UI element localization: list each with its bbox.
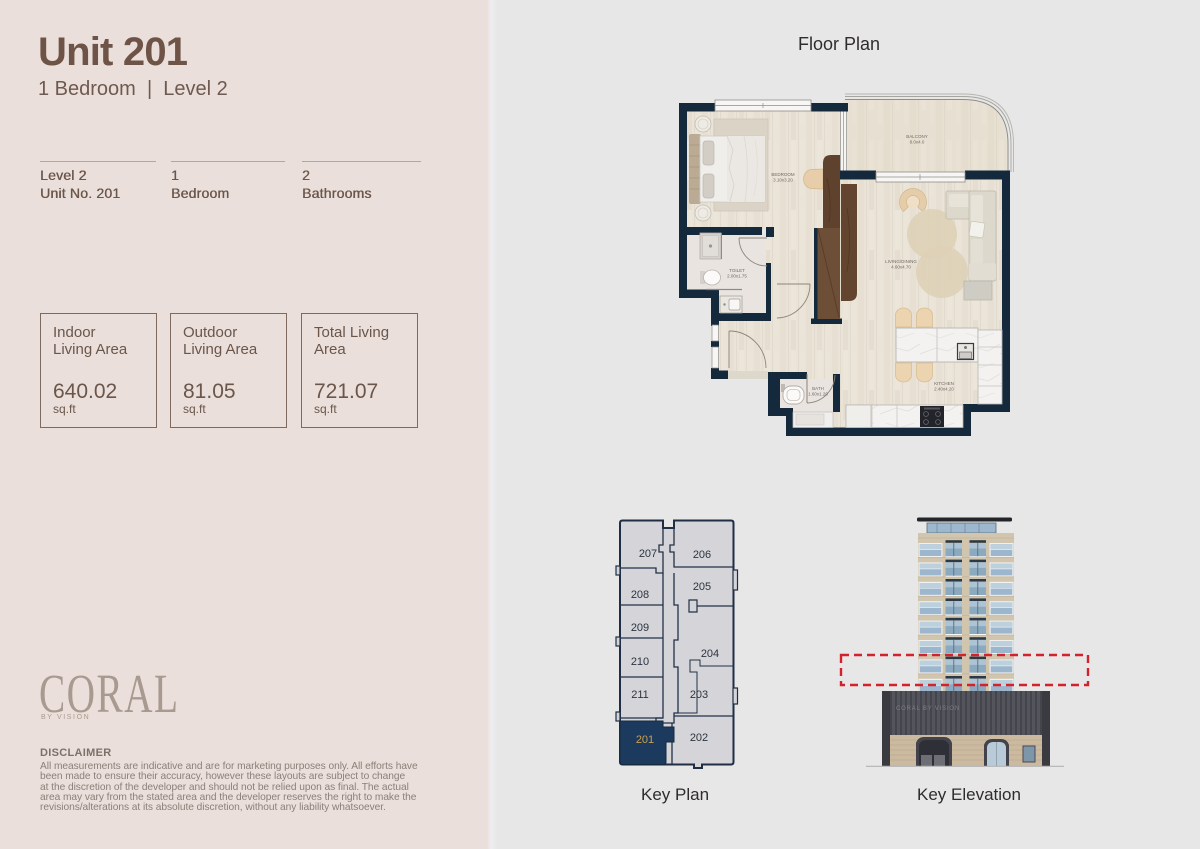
svg-text:TOILET: TOILET	[729, 268, 745, 273]
svg-text:208: 208	[631, 589, 649, 601]
svg-text:210: 210	[631, 656, 649, 668]
svg-text:1.60x1.20: 1.60x1.20	[808, 392, 828, 397]
svg-text:2.00x1.75: 2.00x1.75	[727, 274, 747, 279]
svg-text:BEDROOM: BEDROOM	[771, 172, 795, 177]
svg-text:BATH: BATH	[812, 386, 824, 391]
svg-text:206: 206	[693, 549, 711, 561]
svg-text:211: 211	[631, 689, 649, 701]
svg-text:209: 209	[631, 622, 649, 634]
svg-text:2.40x4.20: 2.40x4.20	[934, 387, 954, 392]
svg-text:8.0x4.0: 8.0x4.0	[910, 140, 925, 145]
svg-text:4.60x4.70: 4.60x4.70	[891, 265, 911, 270]
svg-text:202: 202	[690, 732, 708, 744]
svg-text:KITCHEN: KITCHEN	[934, 381, 954, 386]
svg-text:203: 203	[690, 689, 708, 701]
svg-text:204: 204	[701, 648, 719, 660]
svg-text:BALCONY: BALCONY	[906, 134, 928, 139]
svg-text:CORAL BY VISION: CORAL BY VISION	[896, 706, 960, 712]
svg-text:LIVING/DINING: LIVING/DINING	[885, 259, 917, 264]
svg-text:201: 201	[636, 734, 654, 746]
svg-text:3.10x3.20: 3.10x3.20	[773, 178, 793, 183]
svg-text:207: 207	[639, 548, 657, 560]
svg-text:205: 205	[693, 581, 711, 593]
